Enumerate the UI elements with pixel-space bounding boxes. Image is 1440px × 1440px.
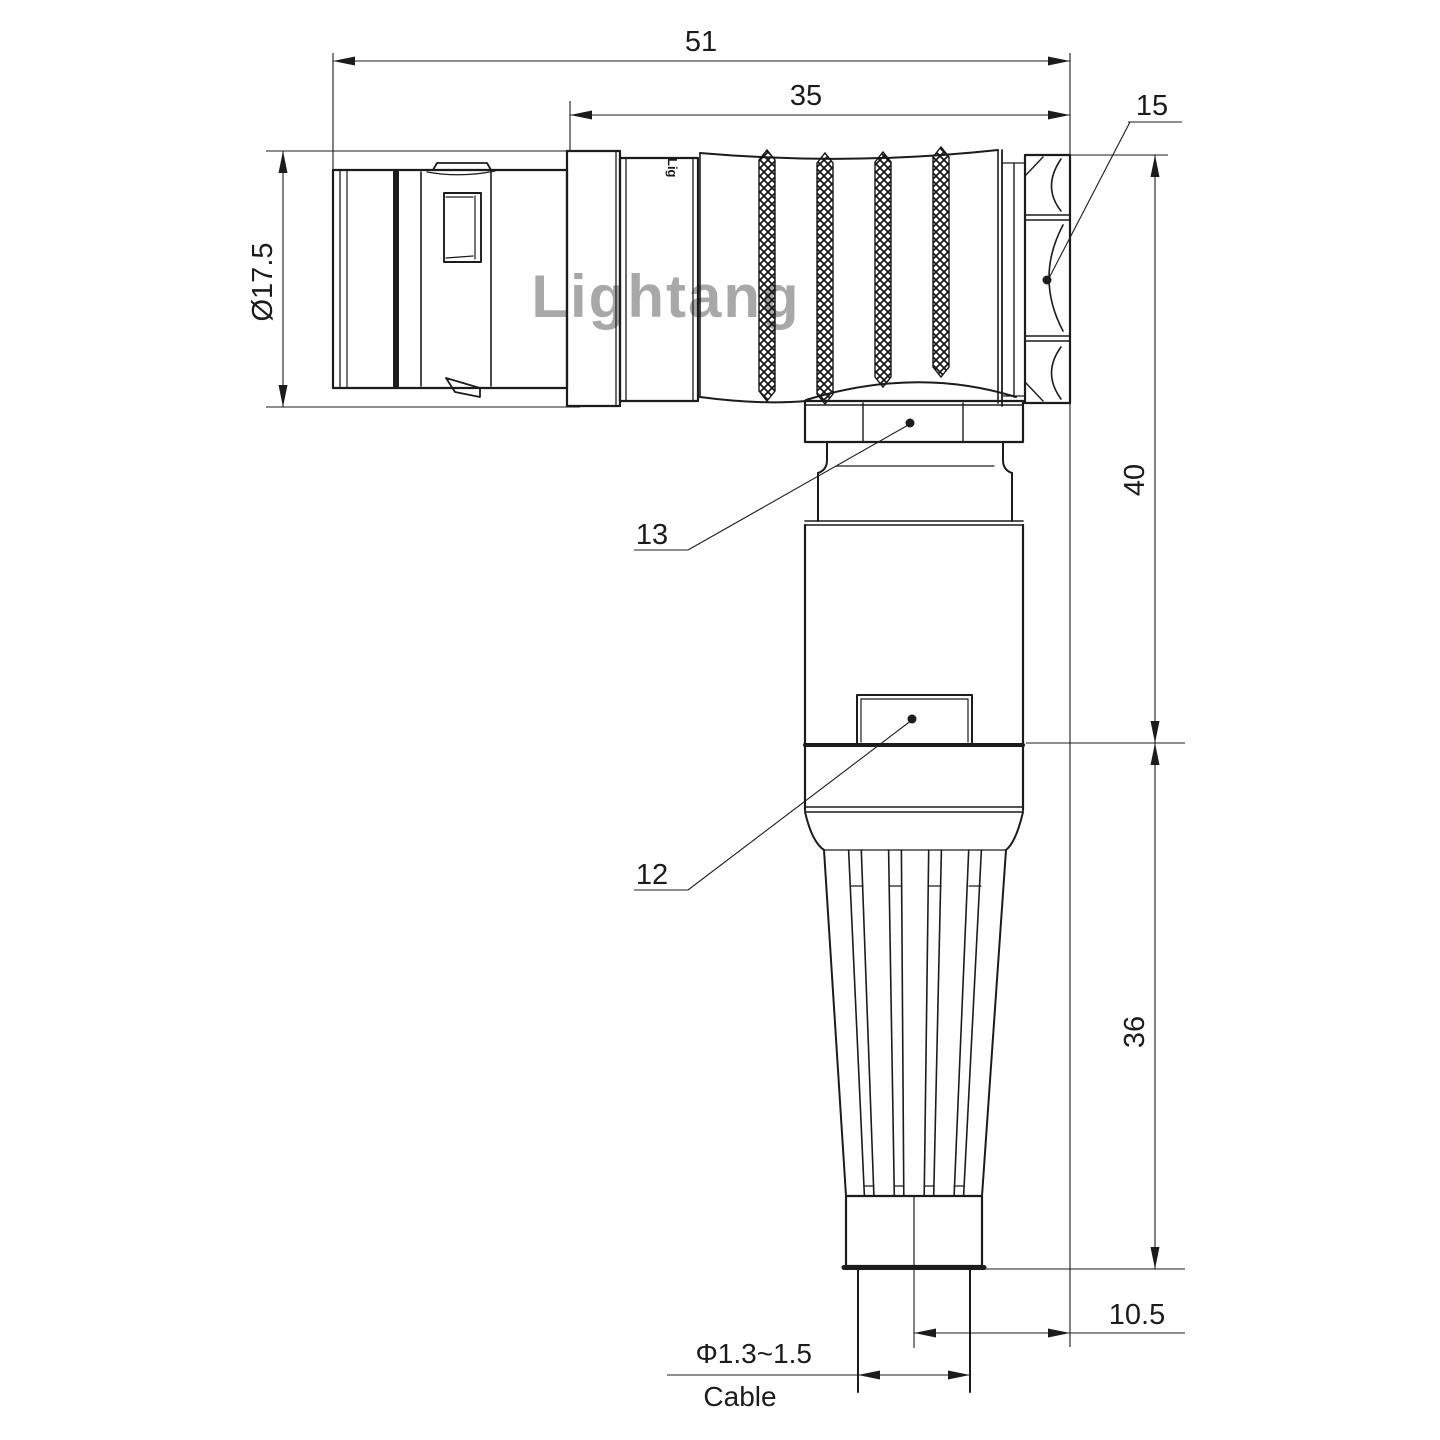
part-label-hex-backnut: 15: [1136, 90, 1168, 122]
dim-cable-diameter: Φ1.3~1.5 Cable: [667, 1338, 970, 1412]
dim-lower-height: 36: [985, 743, 1185, 1269]
lower-housing: [805, 747, 1023, 850]
elbow-vertical-assembly: [805, 401, 1023, 1392]
neck: [805, 473, 1023, 525]
knurl-strip: [875, 152, 891, 387]
flare-ring: [818, 442, 1012, 473]
dim-axis-to-face: 10.5: [914, 1270, 1185, 1348]
dim-label-shell-diameter: Ø17.5: [247, 243, 279, 322]
elbow-hump: [806, 382, 1016, 400]
washer-rings: [1002, 150, 1025, 406]
strain-relief-boot: [824, 850, 1006, 1196]
latch-window: [444, 193, 481, 262]
leader-hex-backnut: 15: [1043, 90, 1183, 285]
dim-label-overall-length: 51: [685, 26, 717, 58]
dim-label-cable-diameter: Φ1.3~1.5: [695, 1338, 812, 1369]
knurl-strip: [759, 150, 775, 401]
part-label-coupling-collar: 13: [636, 519, 668, 551]
connector-technical-drawing: Lightang: [0, 0, 1440, 1440]
upper-housing: [805, 525, 1023, 745]
dim-label-rear-body-length: 35: [790, 80, 822, 112]
dim-label-axis-to-face: 10.5: [1109, 1299, 1165, 1331]
cable-label: Cable: [703, 1381, 776, 1412]
dim-rear-body-length: 35: [570, 80, 1070, 152]
leader-housing-tab: 12: [634, 715, 917, 892]
knurl-strip: [817, 153, 833, 404]
knurl-strip: [933, 147, 949, 377]
dim-shell-diameter: Ø17.5: [247, 151, 580, 407]
body-logo: Lig: [665, 158, 680, 178]
dim-overall-length: 51: [333, 26, 1070, 172]
part-label-housing-tab: 12: [636, 859, 668, 891]
dim-label-lower-height: 36: [1119, 1016, 1151, 1048]
dim-label-upper-height: 40: [1119, 464, 1151, 496]
dim-upper-height: 40: [1026, 155, 1185, 743]
leader-coupling-collar: 13: [634, 419, 915, 552]
end-cap: [844, 1196, 984, 1268]
drawing-page: Lightang: [0, 0, 1440, 1440]
